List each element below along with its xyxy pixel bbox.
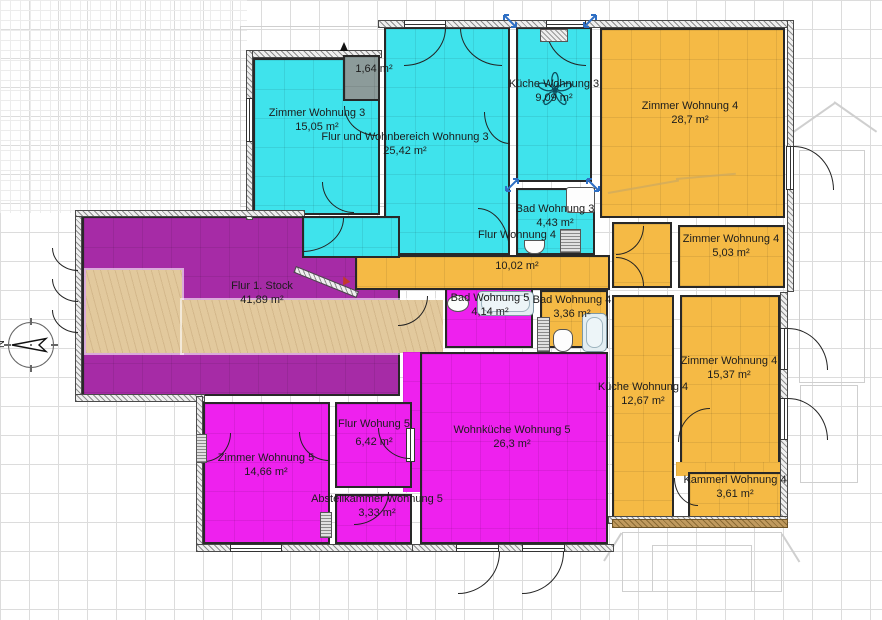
bathtub[interactable] <box>582 313 607 352</box>
fine-grid <box>0 0 247 213</box>
room-kueche-wohnung-4[interactable] <box>612 295 674 518</box>
room-closet[interactable] <box>343 55 380 101</box>
room-zimmer-wohnung-4-mittel[interactable] <box>680 295 780 468</box>
window-marker[interactable] <box>780 398 788 440</box>
radiator[interactable] <box>560 229 581 253</box>
wall-segment[interactable] <box>75 210 82 402</box>
selection-handle-icon[interactable] <box>581 12 599 30</box>
door-arc[interactable] <box>52 310 78 333</box>
wall-segment[interactable] <box>412 544 614 552</box>
compass[interactable]: N <box>8 322 54 368</box>
ceiling-fan-icon[interactable] <box>537 72 573 108</box>
faint-roof-line <box>833 101 877 132</box>
faint-outline-bottom-inner <box>652 545 752 592</box>
bathtub[interactable] <box>477 291 534 316</box>
selection-handle-icon[interactable] <box>503 176 521 194</box>
door-arc[interactable] <box>458 552 500 594</box>
balcony-strip <box>612 519 788 528</box>
stove[interactable] <box>540 29 568 42</box>
floorplan-canvas: Zimmer Wohnung 3 15,05 m² 1,64 m² Flur u… <box>0 0 882 620</box>
window-marker[interactable] <box>230 544 282 552</box>
north-arrow-icon <box>8 322 54 368</box>
window-marker[interactable] <box>404 20 446 28</box>
window-marker[interactable] <box>456 544 499 552</box>
sink[interactable] <box>447 295 469 312</box>
room-wohnkueche-wohnung-5[interactable] <box>420 352 608 544</box>
point-handle-icon[interactable] <box>340 42 348 51</box>
faint-roof-line <box>791 102 835 133</box>
window-marker[interactable] <box>546 20 586 28</box>
toilet[interactable] <box>553 329 573 352</box>
room-kammerl-wohnung-4[interactable] <box>688 472 782 518</box>
radiator[interactable] <box>196 434 207 463</box>
stair-platform[interactable] <box>86 270 182 353</box>
door-arc[interactable] <box>52 248 78 271</box>
window-marker[interactable] <box>246 98 253 142</box>
compass-north-label: N <box>0 340 7 348</box>
wall-segment[interactable] <box>75 210 305 217</box>
room-zimmer-wohnung-4-klein[interactable] <box>678 225 785 288</box>
window-marker[interactable] <box>522 544 565 552</box>
wall-segment[interactable] <box>196 396 203 551</box>
selection-handle-icon[interactable] <box>501 12 519 30</box>
room-zimmer-wohnung-5[interactable] <box>203 402 330 544</box>
radiator[interactable] <box>320 512 332 538</box>
selection-handle-icon[interactable] <box>584 176 602 194</box>
window-marker[interactable] <box>780 328 788 370</box>
window-marker[interactable] <box>786 146 794 190</box>
door-arc[interactable] <box>522 552 564 594</box>
faint-diag-line <box>781 533 800 562</box>
door-arc[interactable] <box>674 478 698 506</box>
door-arc[interactable] <box>52 279 78 302</box>
wall-segment[interactable] <box>75 394 205 402</box>
radiator[interactable] <box>537 317 550 352</box>
room-flur-wohnung-4[interactable] <box>355 255 610 290</box>
